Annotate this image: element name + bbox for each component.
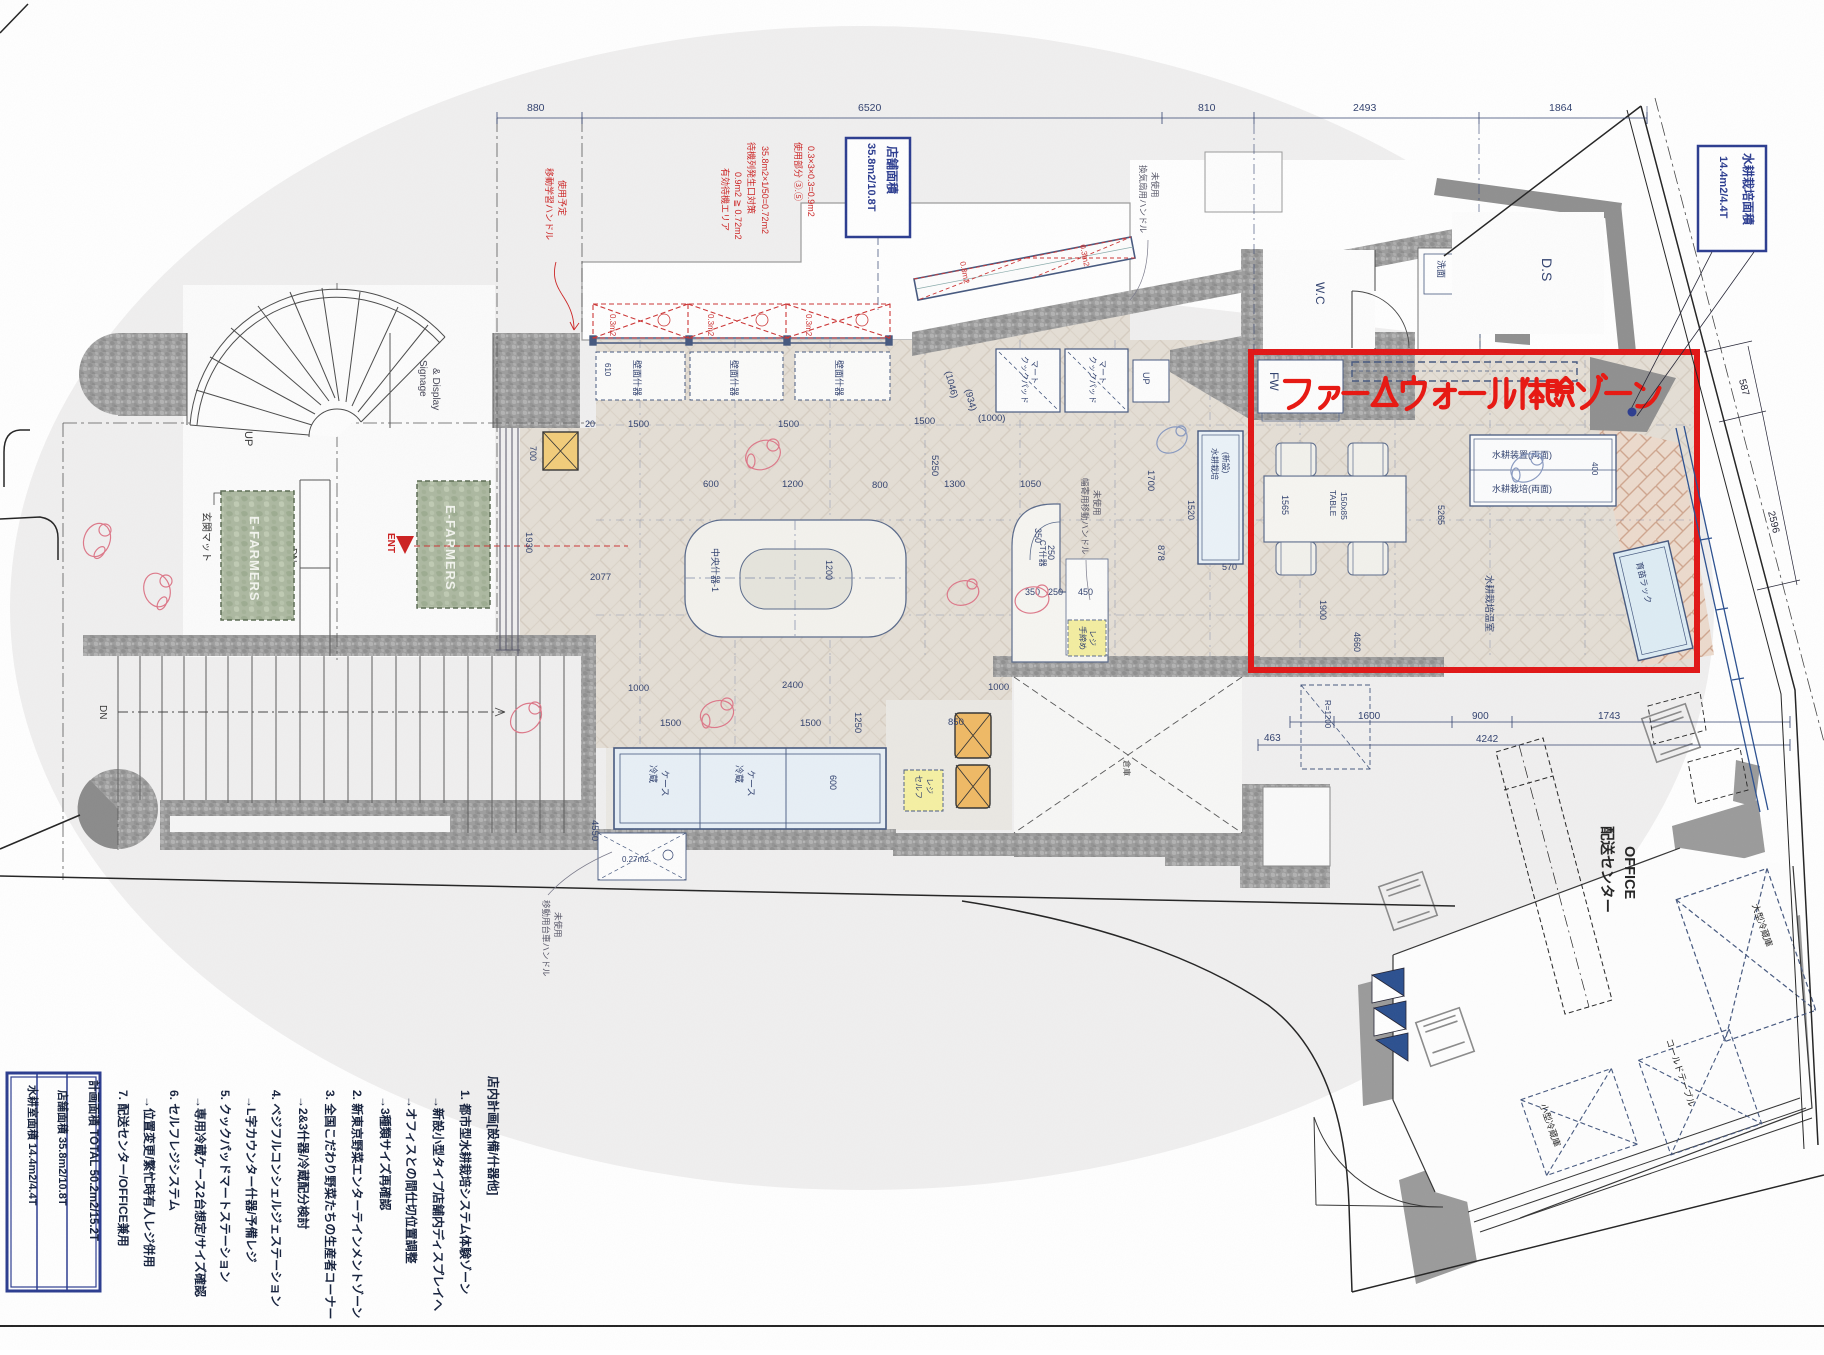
svg-text:壁面什器: 壁面什器 [834,360,845,396]
svg-text:1200: 1200 [782,479,803,490]
svg-text:未使用: 未使用 [1092,490,1102,516]
svg-text:810: 810 [1198,102,1216,114]
svg-text:クックパッド: クックパッド [1088,356,1097,404]
svg-text:1500: 1500 [778,419,799,430]
svg-text:250: 250 [1048,587,1063,597]
svg-text:→3種類サイズ再確認: →3種類サイズ再確認 [378,1096,393,1210]
svg-text:600: 600 [828,775,838,790]
svg-text:→オフィスとの間仕切位置調整: →オフィスとの間仕切位置調整 [404,1096,419,1264]
svg-text:店舗面積 35.8m2/10.8T: 店舗面積 35.8m2/10.8T [56,1090,70,1206]
svg-text:878: 878 [1155,545,1166,561]
svg-text:1000: 1000 [988,682,1009,693]
svg-text:未使用: 未使用 [553,912,563,938]
svg-text:5265: 5265 [1436,505,1446,525]
svg-text:R=1200: R=1200 [1323,700,1332,729]
svg-text:1900: 1900 [1318,600,1328,620]
svg-text:800: 800 [872,480,888,491]
svg-text:→位置変更/繁忙時有人レジ併用: →位置変更/繁忙時有人レジ併用 [142,1096,157,1267]
svg-text:1. 都市型水耕栽培システム体験ゾーン: 1. 都市型水耕栽培システム体験ゾーン [458,1090,473,1294]
svg-text:待機列発生口対策: 待機列発生口対策 [746,142,757,214]
svg-text:700: 700 [528,446,538,461]
svg-text:2. 新東京野菜エンターテインメントゾーン: 2. 新東京野菜エンターテインメントゾーン [350,1090,365,1318]
svg-text:1930: 1930 [523,532,534,553]
svg-text:0.3m2: 0.3m2 [804,314,813,337]
svg-text:(1000): (1000) [978,413,1005,424]
svg-text:UP: UP [242,431,254,446]
svg-text:6. セルフレジシステム: 6. セルフレジシステム [167,1090,181,1211]
svg-text:3. 全国こだわり野菜たちの生産者コーナー: 3. 全国こだわり野菜たちの生産者コーナー [323,1090,338,1319]
svg-text:1500: 1500 [628,419,649,430]
svg-text:マート: マート [1030,360,1039,384]
svg-text:900: 900 [1472,711,1489,722]
svg-text:E-FARMERS: E-FARMERS [247,516,262,602]
svg-text:マート: マート [1098,360,1107,384]
svg-text:1300: 1300 [944,479,965,490]
svg-text:1520: 1520 [1186,500,1196,520]
svg-text:(新設): (新設) [1221,452,1231,474]
svg-text:570: 570 [1222,562,1237,572]
svg-text:DN: DN [97,705,108,719]
svg-text:移動学習ハンドル: 移動学習ハンドル [544,168,555,240]
svg-text:中央什器-1: 中央什器-1 [710,548,721,592]
svg-text:FW: FW [1267,372,1281,391]
svg-text:0.3m2: 0.3m2 [608,314,617,337]
svg-text:D.S: D.S [1539,258,1555,281]
svg-text:水耕栽培: 水耕栽培 [1210,448,1220,480]
svg-text:配送センター: 配送センター [1598,826,1616,913]
svg-text:Signage: Signage [417,360,428,397]
svg-text:880: 880 [527,102,545,114]
svg-text:玄関マット: 玄関マット [200,512,213,562]
svg-text:ケース: ケース [746,770,756,797]
svg-text:610: 610 [603,363,612,377]
svg-text:150x85: 150x85 [1339,492,1349,520]
svg-text:水耕栽培面積: 水耕栽培面積 [1741,153,1756,226]
svg-text:水耕栽培温室: 水耕栽培温室 [1483,575,1495,632]
svg-text:1743: 1743 [1598,711,1621,722]
svg-text:1000: 1000 [628,683,649,694]
svg-text:1250: 1250 [852,712,863,733]
svg-text:1500: 1500 [800,718,821,729]
svg-text:冷蔵: 冷蔵 [648,765,659,783]
svg-text:14.4m2/4.4T: 14.4m2/4.4T [1717,156,1729,219]
svg-text:600: 600 [703,479,719,490]
svg-text:450: 450 [1078,587,1093,597]
svg-text:1500: 1500 [914,416,935,427]
svg-text:2400: 2400 [782,680,803,691]
svg-text:有効待機エリア: 有効待機エリア [720,168,731,231]
svg-text:350: 350 [1033,528,1043,543]
svg-text:レジ: レジ [1088,630,1097,646]
svg-text:4. ベジフルコンシェルジェステーション: 4. ベジフルコンシェルジェステーション [269,1090,283,1307]
svg-text:5. クックパッドマートステーション: 5. クックパッドマートステーション [218,1090,232,1283]
svg-text:→2&3什器/冷蔵配分検討: →2&3什器/冷蔵配分検討 [296,1096,311,1229]
svg-text:4660: 4660 [1352,632,1362,652]
svg-text:ENT: ENT [385,533,396,553]
svg-text:1600: 1600 [1358,711,1381,722]
svg-text:2077: 2077 [590,572,611,583]
svg-text:移動用台車ハンドル: 移動用台車ハンドル [541,900,551,977]
svg-text:1200: 1200 [824,560,834,580]
svg-text:250: 250 [1046,545,1056,560]
svg-text:7. 配送センター/OFFICE兼用: 7. 配送センター/OFFICE兼用 [116,1090,131,1247]
svg-text:1500: 1500 [660,718,681,729]
svg-text:計画面積 TOTAL 50.2m2/15.2T: 計画面積 TOTAL 50.2m2/15.2T [87,1080,101,1241]
svg-text:6520: 6520 [858,102,882,114]
svg-text:使用予定: 使用予定 [557,180,568,216]
svg-text:セルフ: セルフ [914,775,923,799]
svg-text:400: 400 [1590,462,1599,476]
svg-text:35.8m2/10.8T: 35.8m2/10.8T [865,143,877,212]
svg-text:クックパッド: クックパッド [1020,356,1029,404]
svg-text:& Display: & Display [430,368,441,410]
svg-text:E-FARMERS: E-FARMERS [443,505,458,591]
svg-text:倉庫: 倉庫 [1122,760,1132,776]
svg-text:UP: UP [1141,372,1151,385]
svg-text:壁面什器: 壁面什器 [729,360,740,396]
svg-text:20: 20 [585,419,595,429]
svg-text:0.27m2: 0.27m2 [622,855,649,864]
svg-text:2493: 2493 [1353,102,1377,114]
svg-text:1700: 1700 [1145,470,1156,491]
svg-text:洗面: 洗面 [1436,260,1447,278]
svg-text:4242: 4242 [1476,734,1499,745]
svg-text:未使用: 未使用 [1150,172,1160,198]
svg-text:水耕栽培(両面): 水耕栽培(両面) [1492,483,1552,494]
svg-text:水耕室面積 14.4m2/4.4T: 水耕室面積 14.4m2/4.4T [26,1085,40,1206]
svg-text:W.C: W.C [1313,282,1327,305]
svg-text:手締め: 手締め [1078,626,1088,650]
svg-text:463: 463 [1264,733,1281,744]
svg-text:4550: 4550 [589,820,600,841]
svg-text:→専用冷蔵ケース2台想定/サイズ確認: →専用冷蔵ケース2台想定/サイズ確認 [193,1096,208,1297]
svg-text:店内計画[設備/什器他]: 店内計画[設備/什器他] [486,1076,501,1195]
svg-text:0.9m2 ≧ 0.72m2: 0.9m2 ≧ 0.72m2 [733,172,743,240]
svg-text:OFFICE: OFFICE [1621,846,1637,899]
svg-text:1864: 1864 [1549,102,1573,114]
svg-text:店舗面積: 店舗面積 [885,146,900,195]
svg-text:ケース: ケース [660,770,670,797]
svg-text:使用部分 ③.⑤: 使用部分 ③.⑤ [793,142,804,201]
svg-text:5250: 5250 [929,455,940,476]
svg-text:→L字カウンター什器/予備レジ: →L字カウンター什器/予備レジ [244,1096,259,1263]
svg-text:→新設小型タイプ店舗内ディスプレイへ: →新設小型タイプ店舗内ディスプレイへ [431,1096,446,1311]
svg-text:幅寄用移動ハンドル: 幅寄用移動ハンドル [1080,478,1090,555]
svg-text:1565: 1565 [1280,495,1290,515]
svg-text:0.3m2: 0.3m2 [706,314,715,337]
svg-text:850: 850 [948,717,964,728]
svg-text:35.8m2×1/50=0.72m2: 35.8m2×1/50=0.72m2 [760,146,770,234]
svg-text:換気扇用ハンドル: 換気扇用ハンドル [1138,165,1148,234]
svg-text:1050: 1050 [1020,479,1041,490]
svg-text:TABLE: TABLE [1328,490,1338,517]
svg-text:冷蔵: 冷蔵 [734,765,745,783]
svg-text:壁面什器: 壁面什器 [632,360,643,396]
svg-text:レジ: レジ [925,778,934,794]
svg-text:0.3×3×0.3=0.9m2: 0.3×3×0.3=0.9m2 [806,146,816,217]
